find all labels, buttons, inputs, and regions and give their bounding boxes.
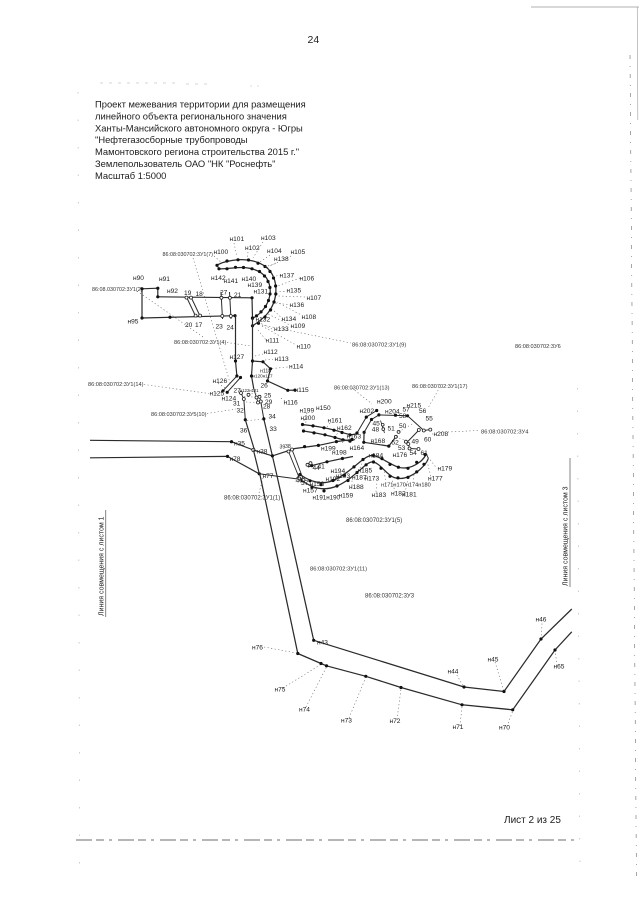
svg-text:86:08.030702:3У1(2): 86:08.030702:3У1(2)	[92, 287, 143, 293]
svg-text:н35: н35	[234, 441, 245, 448]
svg-text:Лист 2 из 25: Лист 2 из 25	[504, 815, 561, 826]
svg-text:Мамонтовского региона строител: Мамонтовского региона строительства 2015…	[95, 146, 299, 157]
svg-text:н171н170н174н180: н171н170н174н180	[381, 483, 431, 489]
svg-text:н46: н46	[536, 617, 547, 624]
svg-text:н72: н72	[390, 718, 401, 725]
svg-text:н140: н140	[242, 276, 257, 283]
svg-text:н44: н44	[448, 669, 459, 676]
svg-text:н208: н208	[434, 431, 449, 438]
svg-text:28: 28	[263, 404, 271, 411]
svg-text:19: 19	[184, 290, 192, 297]
svg-text:н105: н105	[291, 249, 306, 256]
svg-text:Линия совмещения с листом 3: Линия совмещения с листом 3	[563, 486, 570, 586]
svg-text:н177: н177	[428, 476, 443, 483]
svg-text:50: 50	[399, 423, 407, 430]
svg-text:51: 51	[388, 426, 396, 433]
svg-text:н184: н184	[369, 452, 384, 459]
svg-text:н137: н137	[280, 273, 295, 280]
svg-text:н138: н138	[274, 256, 289, 263]
svg-text:н91: н91	[159, 276, 170, 283]
svg-text:н200: н200	[377, 398, 392, 405]
svg-text:н65: н65	[554, 664, 565, 671]
svg-text:н90: н90	[133, 275, 144, 282]
svg-text:17: 17	[195, 322, 203, 329]
svg-text:н185: н185	[358, 468, 373, 475]
svg-text:н173: н173	[365, 476, 380, 483]
svg-text:41: 41	[318, 464, 326, 471]
svg-text:32: 32	[237, 408, 245, 415]
svg-text:н163: н163	[347, 434, 362, 441]
svg-text:н110: н110	[297, 344, 311, 351]
svg-text:н114: н114	[289, 364, 303, 371]
svg-text:н162: н162	[337, 425, 352, 432]
svg-text:н191н190: н191н190	[313, 495, 341, 502]
svg-text:н78: н78	[230, 456, 241, 463]
svg-text:Землепользователь ОАО "НК "Рос: Землепользователь ОАО "НК "Роснефть"	[95, 158, 275, 169]
svg-text:н141: н141	[224, 278, 239, 285]
svg-text:26: 26	[261, 383, 269, 390]
svg-text:н176: н176	[393, 452, 408, 459]
svg-text:н112: н112	[264, 349, 278, 356]
svg-text:54: 54	[410, 450, 418, 457]
svg-text:86:08:030702:3У1(9): 86:08:030702:3У1(9)	[352, 343, 406, 349]
svg-text:н179: н179	[438, 466, 453, 473]
svg-text:86:08:030702:3У1(13): 86:08:030702:3У1(13)	[334, 386, 390, 392]
svg-text:37: 37	[301, 480, 309, 487]
svg-text:21: 21	[234, 292, 242, 299]
svg-text:н109: н109	[291, 323, 306, 330]
svg-text:н104: н104	[267, 248, 282, 255]
svg-text:н113: н113	[275, 356, 289, 363]
svg-text:38: 38	[285, 444, 291, 450]
svg-text:н120н117: н120н117	[253, 374, 274, 379]
svg-text:20: 20	[185, 322, 193, 329]
svg-text:60: 60	[424, 437, 432, 444]
svg-text:н157: н157	[303, 488, 318, 495]
svg-text:86:08:030702:ЗУ6: 86:08:030702:ЗУ6	[515, 344, 561, 350]
svg-text:н126: н126	[213, 378, 228, 385]
svg-text:н132: н132	[256, 317, 271, 324]
svg-text:н164: н164	[350, 445, 365, 452]
svg-text:Ханты-Мансийского автономного: Ханты-Мансийского автономного округа - Ю…	[95, 122, 303, 133]
svg-text:Проект межевания территории дл: Проект межевания территории для размещен…	[95, 99, 306, 110]
svg-text:н74: н74	[299, 707, 310, 714]
svg-text:Масштаб 1:5000: Масштаб 1:5000	[95, 170, 166, 181]
svg-text:н108: н108	[302, 314, 317, 321]
svg-text:86:08:030702:3У1(5): 86:08:030702:3У1(5)	[346, 518, 402, 524]
svg-text:18: 18	[196, 291, 204, 298]
svg-text:н45: н45	[488, 657, 499, 664]
svg-text:н142: н142	[211, 275, 226, 282]
svg-text:33: 33	[270, 426, 278, 433]
svg-text:н139: н139	[248, 282, 263, 289]
svg-text:55: 55	[426, 415, 434, 422]
svg-text:53: 53	[398, 445, 406, 452]
svg-text:31: 31	[233, 401, 241, 408]
svg-text:н181: н181	[402, 492, 417, 499]
svg-text:49: 49	[412, 439, 420, 446]
svg-text:23: 23	[216, 324, 224, 331]
svg-text:86:08:030702:ЗУ3: 86:08:030702:ЗУ3	[365, 594, 415, 600]
svg-text:86:08:030702:3У1(14): 86:08:030702:3У1(14)	[88, 382, 144, 388]
svg-text:н133: н133	[274, 326, 289, 333]
svg-text:36: 36	[240, 428, 248, 435]
svg-text:н95: н95	[128, 319, 139, 326]
svg-text:н198: н198	[332, 450, 347, 457]
svg-text:86:08:030702:3У1(7): 86:08:030702:3У1(7)	[163, 252, 214, 258]
svg-text:н73: н73	[341, 718, 352, 725]
svg-text:86:08:030702:3У1(11): 86:08:030702:3У1(11)	[310, 567, 367, 573]
svg-text:48: 48	[372, 427, 380, 434]
svg-text:н106: н106	[300, 276, 315, 283]
svg-text:н100: н100	[214, 249, 229, 256]
svg-text:86:08:030702:3У1(1): 86:08:030702:3У1(1)	[224, 496, 280, 502]
svg-text:н200: н200	[301, 415, 316, 422]
svg-text:н43: н43	[317, 640, 328, 647]
svg-text:24: 24	[308, 34, 320, 46]
svg-text:56: 56	[419, 408, 427, 415]
svg-text:н76: н76	[252, 645, 263, 652]
svg-text:н135: н135	[287, 288, 302, 295]
svg-text:н134: н134	[282, 316, 297, 323]
svg-text:н111: н111	[266, 338, 280, 345]
svg-text:н188: н188	[349, 484, 364, 491]
svg-text:линейного объекта региональног: линейного объекта регионального значения	[95, 110, 287, 121]
svg-text:н202: н202	[360, 408, 375, 415]
svg-text:27: 27	[220, 290, 228, 297]
svg-text:н122н121: н122н121	[240, 388, 259, 393]
svg-text:н101: н101	[230, 236, 245, 243]
svg-text:н127: н127	[230, 354, 245, 361]
svg-text:86:08:030702:3У5(10): 86:08:030702:3У5(10)	[151, 412, 207, 418]
svg-text:н71: н71	[453, 724, 464, 731]
svg-text:24: 24	[227, 325, 235, 332]
svg-text:н116: н116	[284, 400, 298, 407]
svg-text:н70: н70	[499, 725, 510, 732]
svg-text:н102: н102	[245, 245, 260, 252]
svg-text:н103: н103	[261, 235, 276, 242]
svg-text:н107: н107	[307, 295, 322, 302]
svg-text:н136: н136	[290, 302, 305, 309]
svg-text:Линия совмещения с листом 1: Линия совмещения с листом 1	[99, 516, 106, 616]
svg-text:н92: н92	[167, 288, 178, 295]
svg-text:н204: н204	[385, 409, 400, 416]
svg-text:н159: н159	[339, 493, 354, 500]
svg-text:34: 34	[269, 414, 277, 421]
svg-text:58: 58	[399, 413, 407, 420]
svg-text:н194: н194	[331, 468, 346, 475]
svg-text:н150: н150	[316, 405, 331, 412]
svg-text:н183: н183	[372, 492, 387, 499]
svg-text:"Нефтегазосборные трубопроводы: "Нефтегазосборные трубопроводы	[95, 134, 248, 145]
svg-text:61: 61	[421, 450, 429, 457]
svg-text:н115: н115	[295, 387, 309, 394]
svg-text:86:08:030702:ЗУ4: 86:08:030702:ЗУ4	[481, 430, 529, 436]
svg-text:н168: н168	[371, 438, 386, 445]
svg-text:н131: н131	[254, 289, 269, 296]
